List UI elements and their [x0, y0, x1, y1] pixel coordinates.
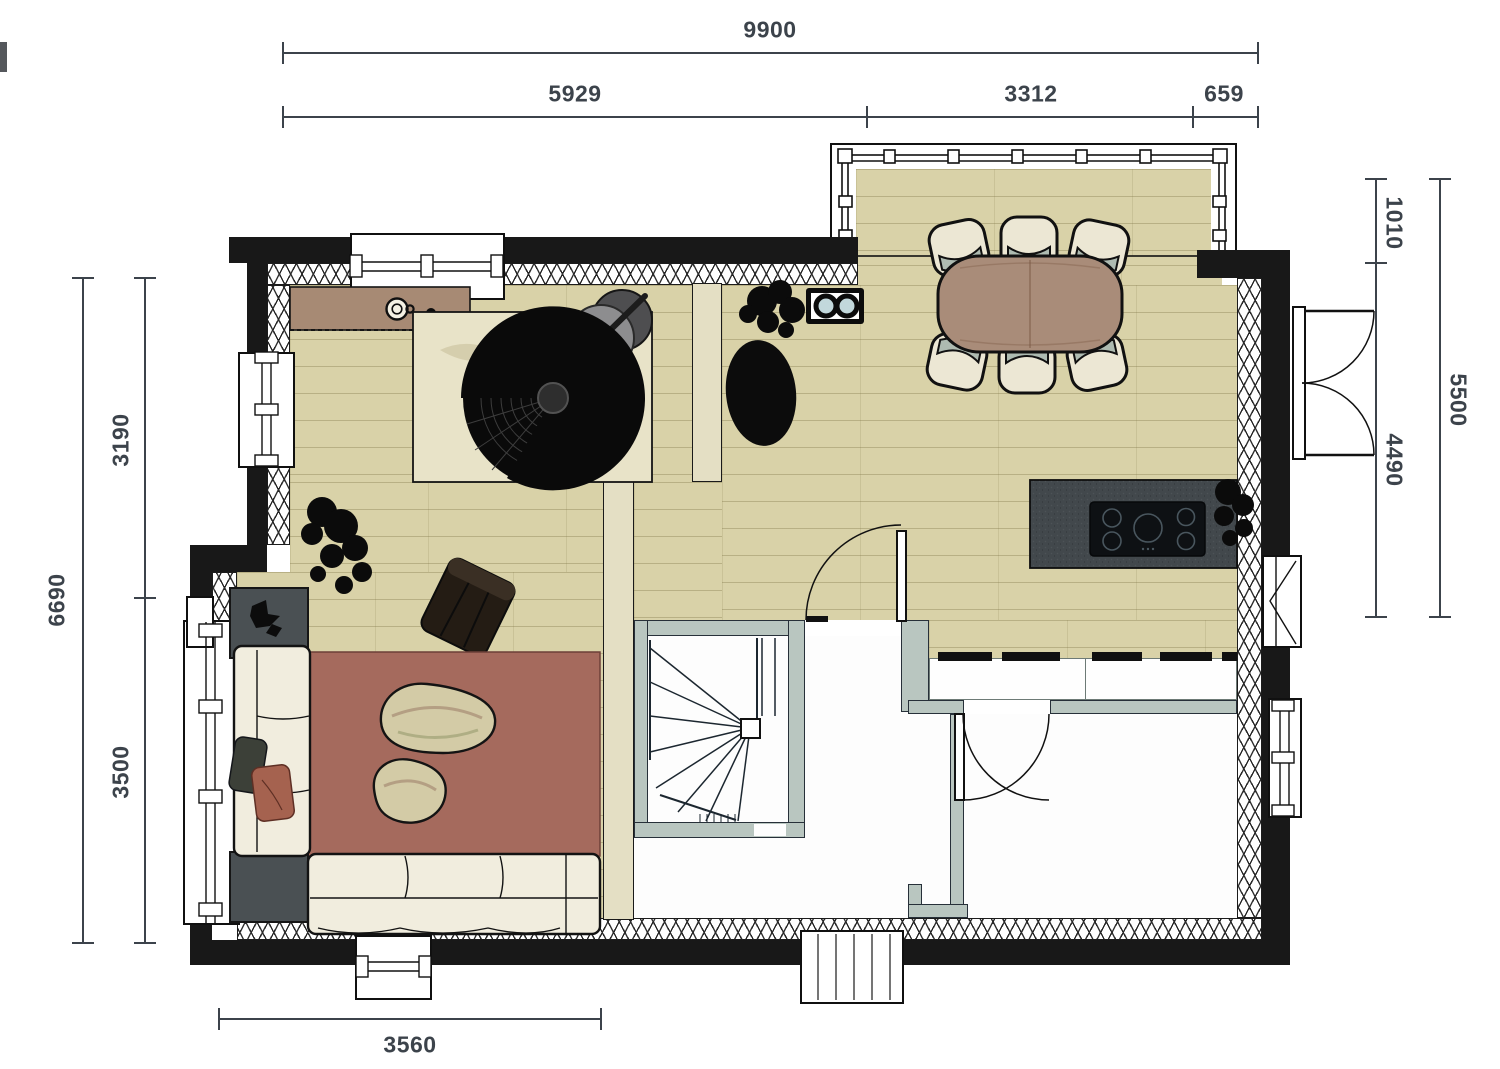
dim-top-seg-1: 5929	[548, 81, 601, 108]
french-door-icon	[1302, 311, 1374, 455]
lounge-chair-icon	[418, 555, 518, 658]
kitchen-island-icon	[1030, 479, 1254, 568]
dim-left-seg-1: 3190	[108, 413, 135, 466]
dining-set	[924, 217, 1132, 394]
pouf-icon	[721, 337, 802, 450]
dim-top-seg-2: 3312	[1004, 81, 1057, 108]
floor-plan-canvas: 9900 5929 3312 659 6690 3190 3500 1010 4…	[0, 0, 1500, 1069]
dim-top-total: 9900	[743, 17, 796, 44]
dim-right-seg-1: 1010	[1381, 196, 1408, 249]
corner-table-icon	[230, 852, 308, 922]
plant-icon	[301, 497, 372, 594]
plant-icon	[739, 280, 805, 338]
door-swing-icon	[955, 714, 1049, 800]
dim-right-outer: 5500	[1445, 373, 1472, 426]
dining-table-icon	[938, 256, 1122, 352]
dim-bottom-seg: 3560	[383, 1032, 436, 1059]
entry-steps-icon	[818, 934, 890, 1000]
dim-left-seg-2: 3500	[108, 745, 135, 798]
plan-details	[0, 0, 1500, 1069]
living-rug-group	[305, 652, 600, 856]
dim-right-seg-2: 4490	[1381, 433, 1408, 486]
winder-staircase-icon	[650, 638, 775, 822]
cooktop-icon	[1090, 502, 1205, 556]
reading-corner	[413, 290, 652, 490]
dim-top-seg-3: 659	[1204, 81, 1244, 108]
rug-mauve	[305, 652, 600, 856]
dim-left-total: 6690	[44, 573, 71, 626]
door-swing-icon	[806, 525, 906, 622]
two-burner-unit-icon	[806, 288, 864, 324]
